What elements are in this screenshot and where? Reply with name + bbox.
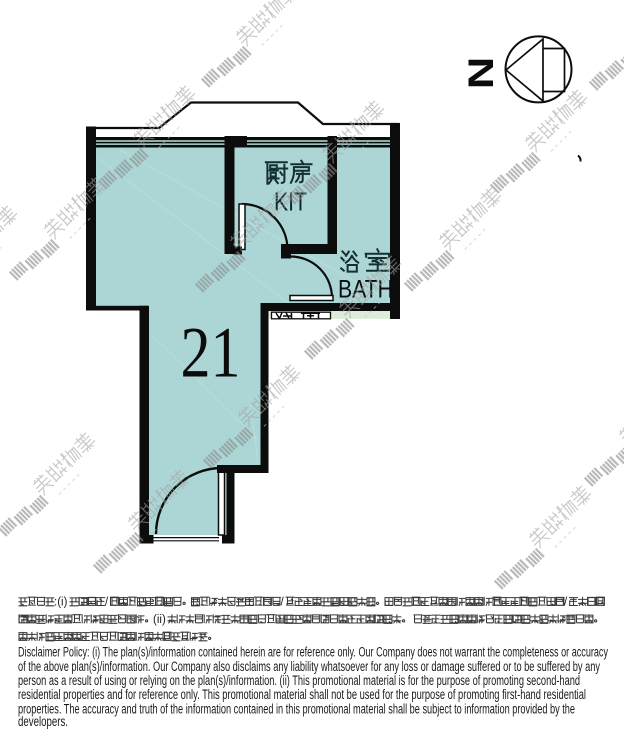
svg-text:properties. The accuracy and t: properties. The accuracy and truth of th… bbox=[18, 701, 575, 717]
svg-text:N: N bbox=[461, 57, 501, 90]
svg-text::(i): :(i) bbox=[54, 596, 68, 608]
svg-text:21: 21 bbox=[181, 312, 241, 392]
svg-text:(ii): (ii) bbox=[153, 614, 166, 626]
svg-text:developers.: developers. bbox=[18, 714, 68, 730]
